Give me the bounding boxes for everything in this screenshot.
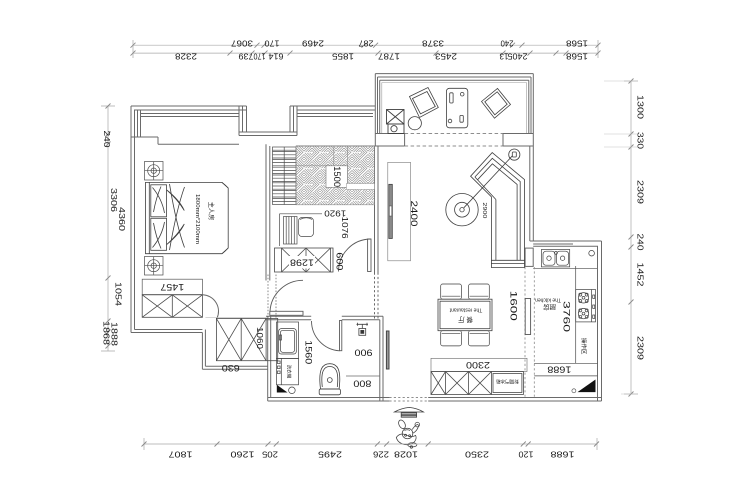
svg-text:1300: 1300 [636, 95, 645, 120]
svg-text:2453: 2453 [434, 51, 457, 60]
svg-text:2350: 2350 [464, 449, 489, 458]
svg-text:1807: 1807 [168, 449, 193, 458]
svg-text:1452: 1452 [636, 263, 645, 288]
svg-text:3306: 3306 [109, 188, 118, 213]
svg-text:對開門冰箱: 對開門冰箱 [496, 378, 519, 385]
svg-text:2900: 2900 [481, 202, 487, 218]
svg-text:1028: 1028 [393, 449, 418, 458]
svg-text:The kitchen: The kitchen [535, 297, 561, 303]
svg-text:2300: 2300 [466, 360, 490, 370]
svg-text:2469: 2469 [301, 38, 324, 47]
svg-text:1260: 1260 [230, 449, 255, 458]
svg-text:330: 330 [636, 132, 645, 150]
svg-text:240: 240 [102, 131, 111, 149]
svg-text:洗衣機: 洗衣機 [286, 365, 293, 379]
svg-text:1568: 1568 [565, 51, 588, 60]
svg-text:240: 240 [500, 38, 514, 47]
svg-text:1076: 1076 [340, 217, 350, 239]
svg-text:2328: 2328 [174, 51, 197, 60]
svg-text:1298: 1298 [290, 257, 314, 267]
svg-text:13: 13 [499, 51, 509, 60]
svg-text:205: 205 [261, 449, 278, 458]
svg-text:1560: 1560 [304, 340, 314, 364]
svg-text:226: 226 [372, 449, 389, 458]
svg-text:170: 170 [253, 51, 265, 60]
svg-text:1688: 1688 [547, 365, 571, 375]
svg-text:1568: 1568 [565, 38, 588, 47]
svg-text:主人房: 主人房 [207, 202, 215, 221]
svg-text:操作区: 操作区 [580, 338, 588, 355]
svg-text:1868: 1868 [102, 321, 111, 346]
svg-text:630: 630 [222, 363, 240, 373]
svg-text:4360: 4360 [117, 207, 126, 232]
svg-text:厨房: 厨房 [543, 303, 556, 312]
svg-text:1054: 1054 [114, 282, 123, 307]
svg-text:3378: 3378 [421, 38, 444, 47]
svg-text:The restaurant: The restaurant [449, 306, 482, 312]
svg-text:287: 287 [358, 38, 374, 47]
svg-text:2400: 2400 [408, 201, 419, 227]
svg-text:3760: 3760 [562, 301, 572, 332]
svg-text:1457: 1457 [160, 282, 184, 292]
svg-text:1688: 1688 [550, 449, 575, 458]
svg-text:1787: 1787 [377, 51, 400, 60]
svg-text:1060: 1060 [255, 327, 265, 349]
svg-text:800: 800 [353, 378, 371, 389]
svg-text:1855: 1855 [331, 51, 354, 60]
svg-text:3067: 3067 [230, 38, 253, 47]
svg-text:614: 614 [268, 51, 284, 60]
svg-text:240: 240 [636, 234, 645, 252]
svg-text:2309: 2309 [636, 180, 645, 205]
svg-text:1888: 1888 [110, 322, 119, 347]
svg-text:1600: 1600 [509, 291, 519, 321]
svg-text:170: 170 [264, 38, 280, 47]
svg-text:739: 739 [238, 51, 254, 60]
svg-text:2495: 2495 [317, 449, 342, 458]
svg-text:120: 120 [518, 449, 534, 458]
svg-text:餐 厅: 餐 厅 [458, 316, 473, 325]
svg-text:900: 900 [355, 346, 373, 357]
svg-text:1500: 1500 [332, 166, 342, 187]
svg-text:1800mm*2100mm: 1800mm*2100mm [194, 194, 200, 244]
svg-text:600: 600 [335, 252, 345, 270]
svg-text:2405: 2405 [507, 51, 528, 60]
svg-text:2309: 2309 [636, 336, 645, 361]
